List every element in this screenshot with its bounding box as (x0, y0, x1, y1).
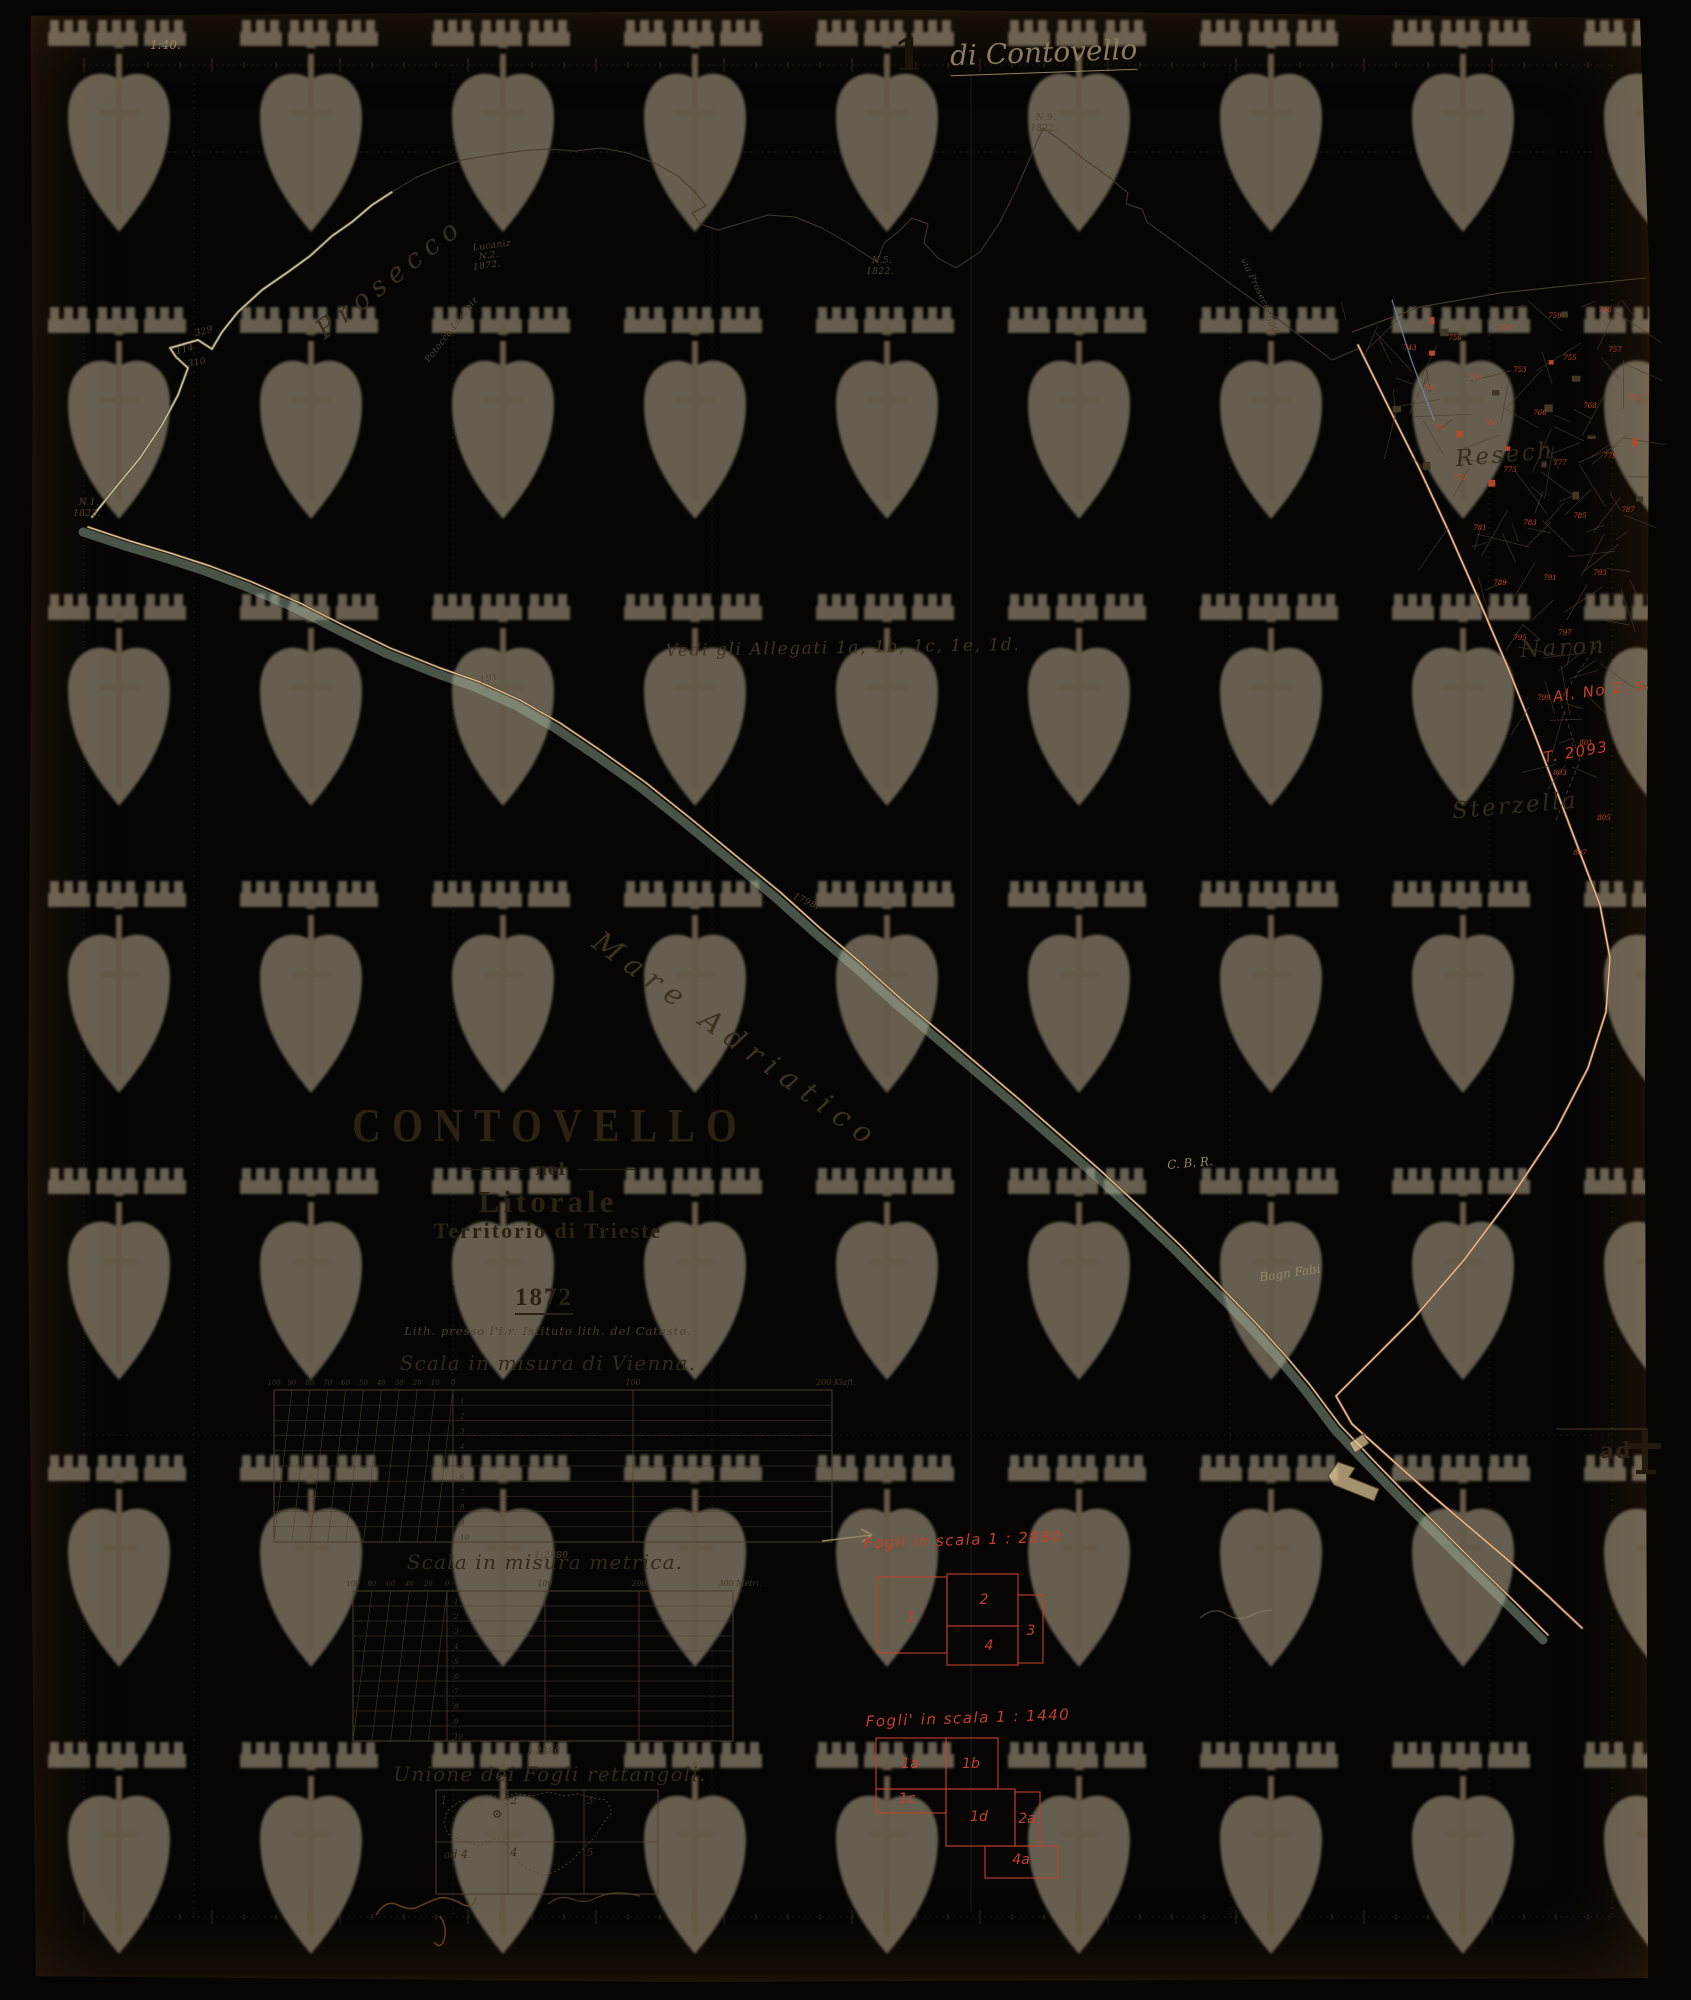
map-label: C. B. R. (1167, 1154, 1214, 1172)
map-label: via Prosecco (1238, 257, 1274, 317)
index-map-title: Unione dei Fogli rettangoli. (393, 1762, 706, 1786)
scanned-map-sheet: 7437567587597607487507537557577627647667… (0, 0, 1691, 2000)
sheet-annotation: di Contovello (949, 33, 1138, 77)
map-label: 191 (479, 672, 499, 685)
map-label: N.9. (1036, 113, 1056, 123)
map-label: 1822. (866, 267, 894, 277)
map-label: 114 (175, 343, 195, 357)
corner-scale-note: 1:40. (150, 38, 181, 52)
rule-right (577, 1169, 635, 1170)
map-label: Naron (1519, 633, 1606, 663)
map-label: N.1. (79, 498, 99, 508)
map-label: Sterzella (1451, 788, 1579, 825)
sheet-number: 1 (893, 30, 924, 81)
map-label: 1822. (73, 509, 101, 519)
map-label: 1872. (473, 259, 502, 273)
map-label: Al. No 2. s. (1552, 674, 1652, 706)
map-labels-layer: 1 di Contovello 1:40. ad CONTOVELLO nel … (0, 0, 1691, 2000)
title-connector: nel (453, 1160, 647, 1180)
scale-title: Scala in misura di Vienna. (400, 1351, 697, 1375)
map-label: Vedi gli Allegati 1a, 1b, 1c, 1e, 1d. (665, 635, 1020, 661)
map-label: 310 (187, 356, 207, 369)
map-label: 1822. (1030, 124, 1058, 134)
fogli-label: Fogli in scala 1 : 2880 (863, 1528, 1063, 1553)
map-label: N.5. (872, 256, 892, 266)
map-label: Resech (1455, 438, 1556, 473)
title-year: 1872 (515, 1284, 573, 1315)
scale-ratio: 1:2880. (526, 1747, 563, 1757)
scale-title: Scala in misura metrica. (407, 1550, 684, 1574)
map-label: Prosecco (310, 210, 471, 345)
title-imprint: Lith. presso l'i.r. Istituto lith. del C… (404, 1324, 692, 1338)
map-label: Bagn Fabi (1259, 1262, 1322, 1284)
map-title: CONTOVELLO (352, 1098, 748, 1153)
map-label: 600. (1263, 314, 1281, 338)
map-label: 1798. (791, 892, 820, 913)
map-label: T. 2093 (1542, 737, 1610, 766)
title-region: Litorale (479, 1184, 618, 1220)
rule-left (465, 1169, 523, 1170)
fogli-label: Fogli' in scala 1 : 1440 (865, 1705, 1070, 1730)
map-label: Potocco Lucaniz (423, 295, 480, 364)
title-territory: Territorio di Trieste (434, 1218, 663, 1244)
edge-mark-ad: ad (1600, 1438, 1632, 1464)
map-label: 329 (194, 325, 214, 339)
